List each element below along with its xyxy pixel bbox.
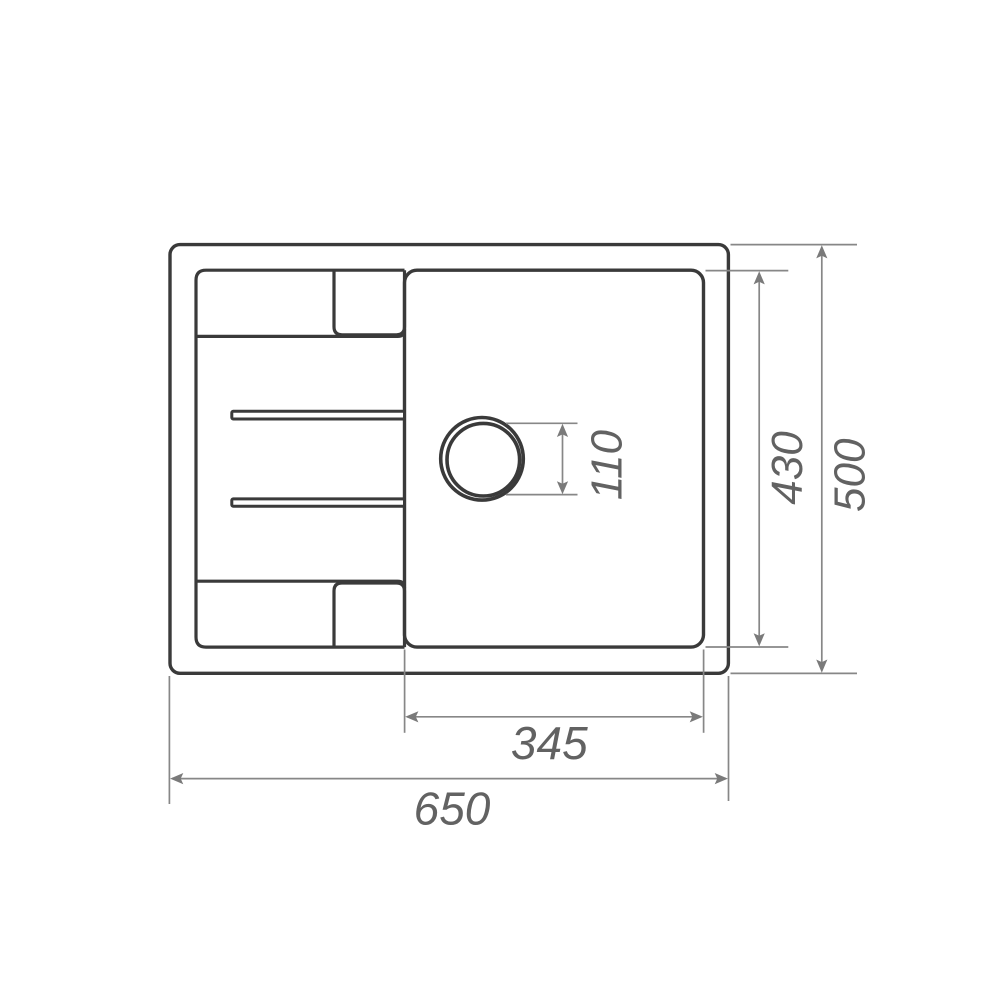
svg-text:110: 110 [583,430,632,501]
svg-text:345: 345 [511,717,588,769]
svg-text:430: 430 [763,431,812,505]
svg-text:650: 650 [414,783,491,835]
svg-text:500: 500 [826,438,875,512]
